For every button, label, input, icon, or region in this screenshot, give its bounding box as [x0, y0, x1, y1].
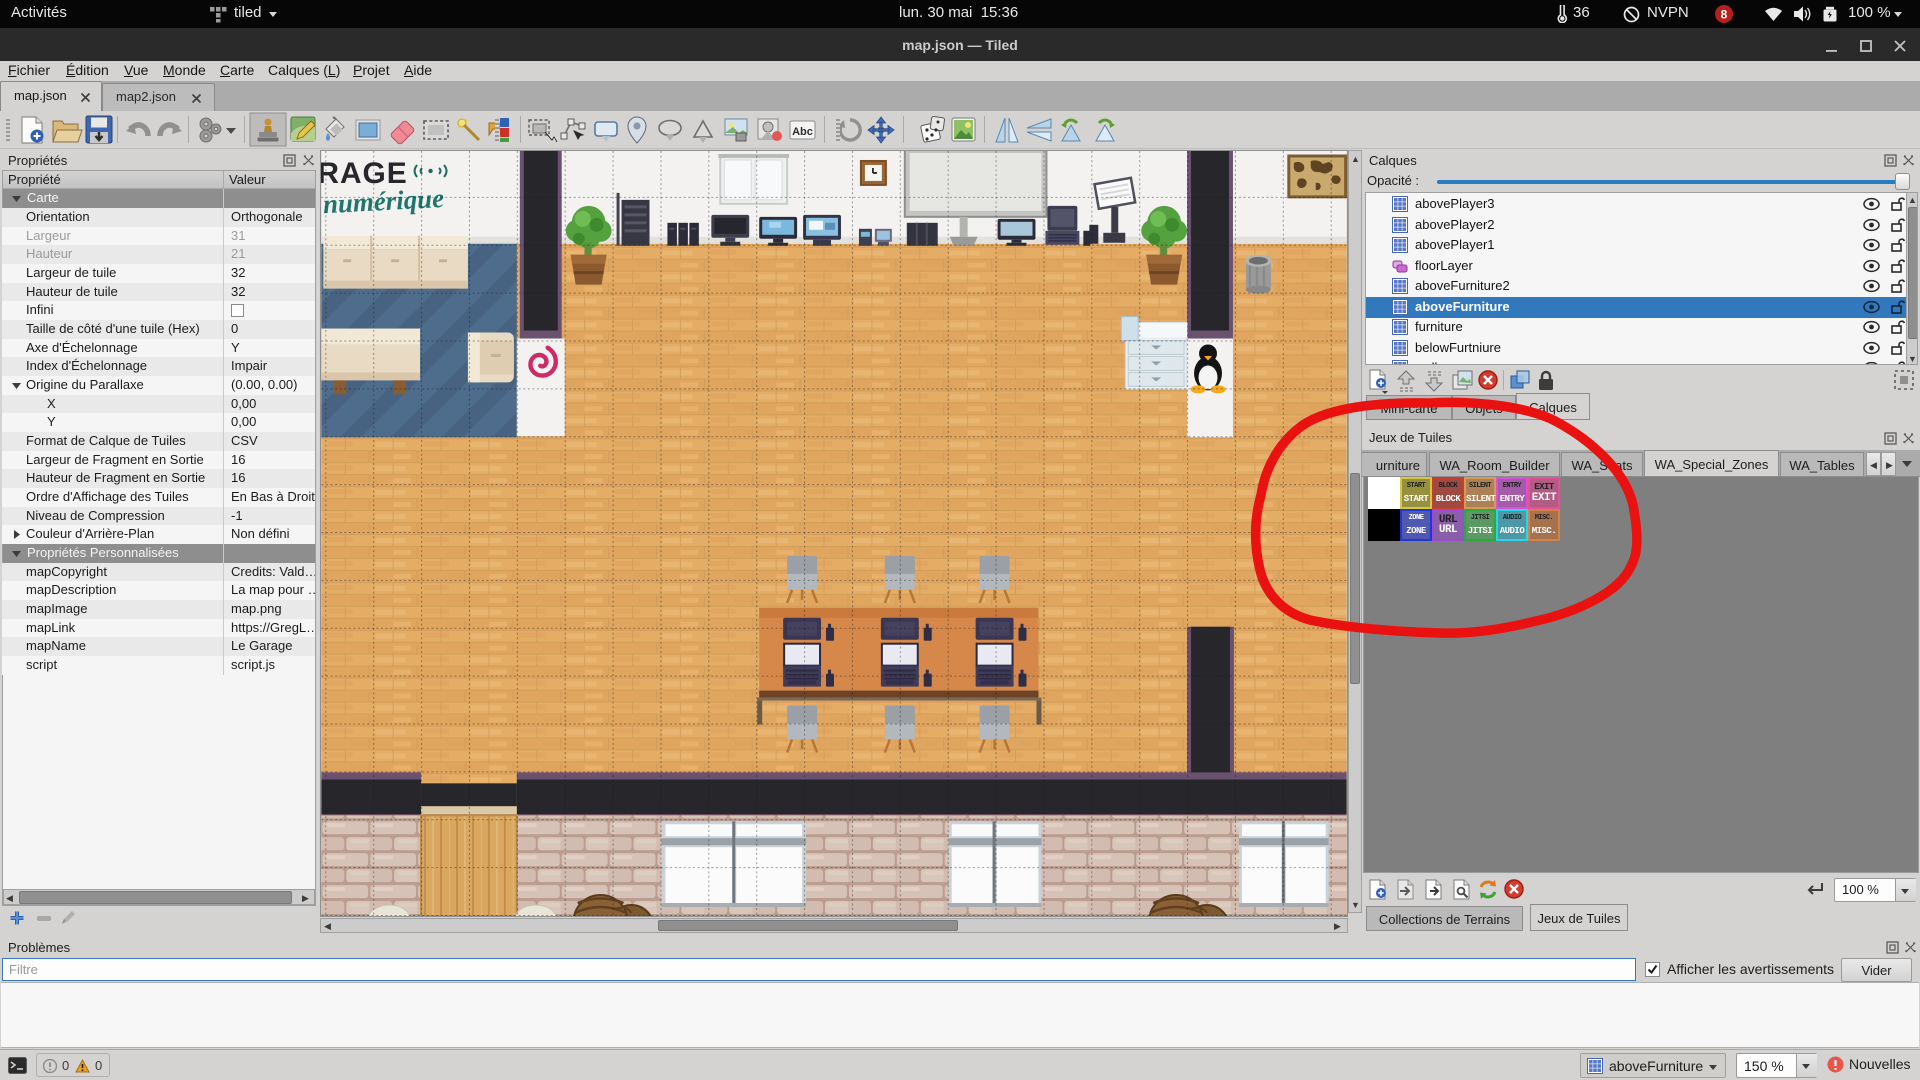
svg-text:8: 8	[1721, 8, 1728, 22]
svg-text:Abc: Abc	[792, 126, 813, 138]
svg-text:numérique: numérique	[322, 183, 445, 219]
